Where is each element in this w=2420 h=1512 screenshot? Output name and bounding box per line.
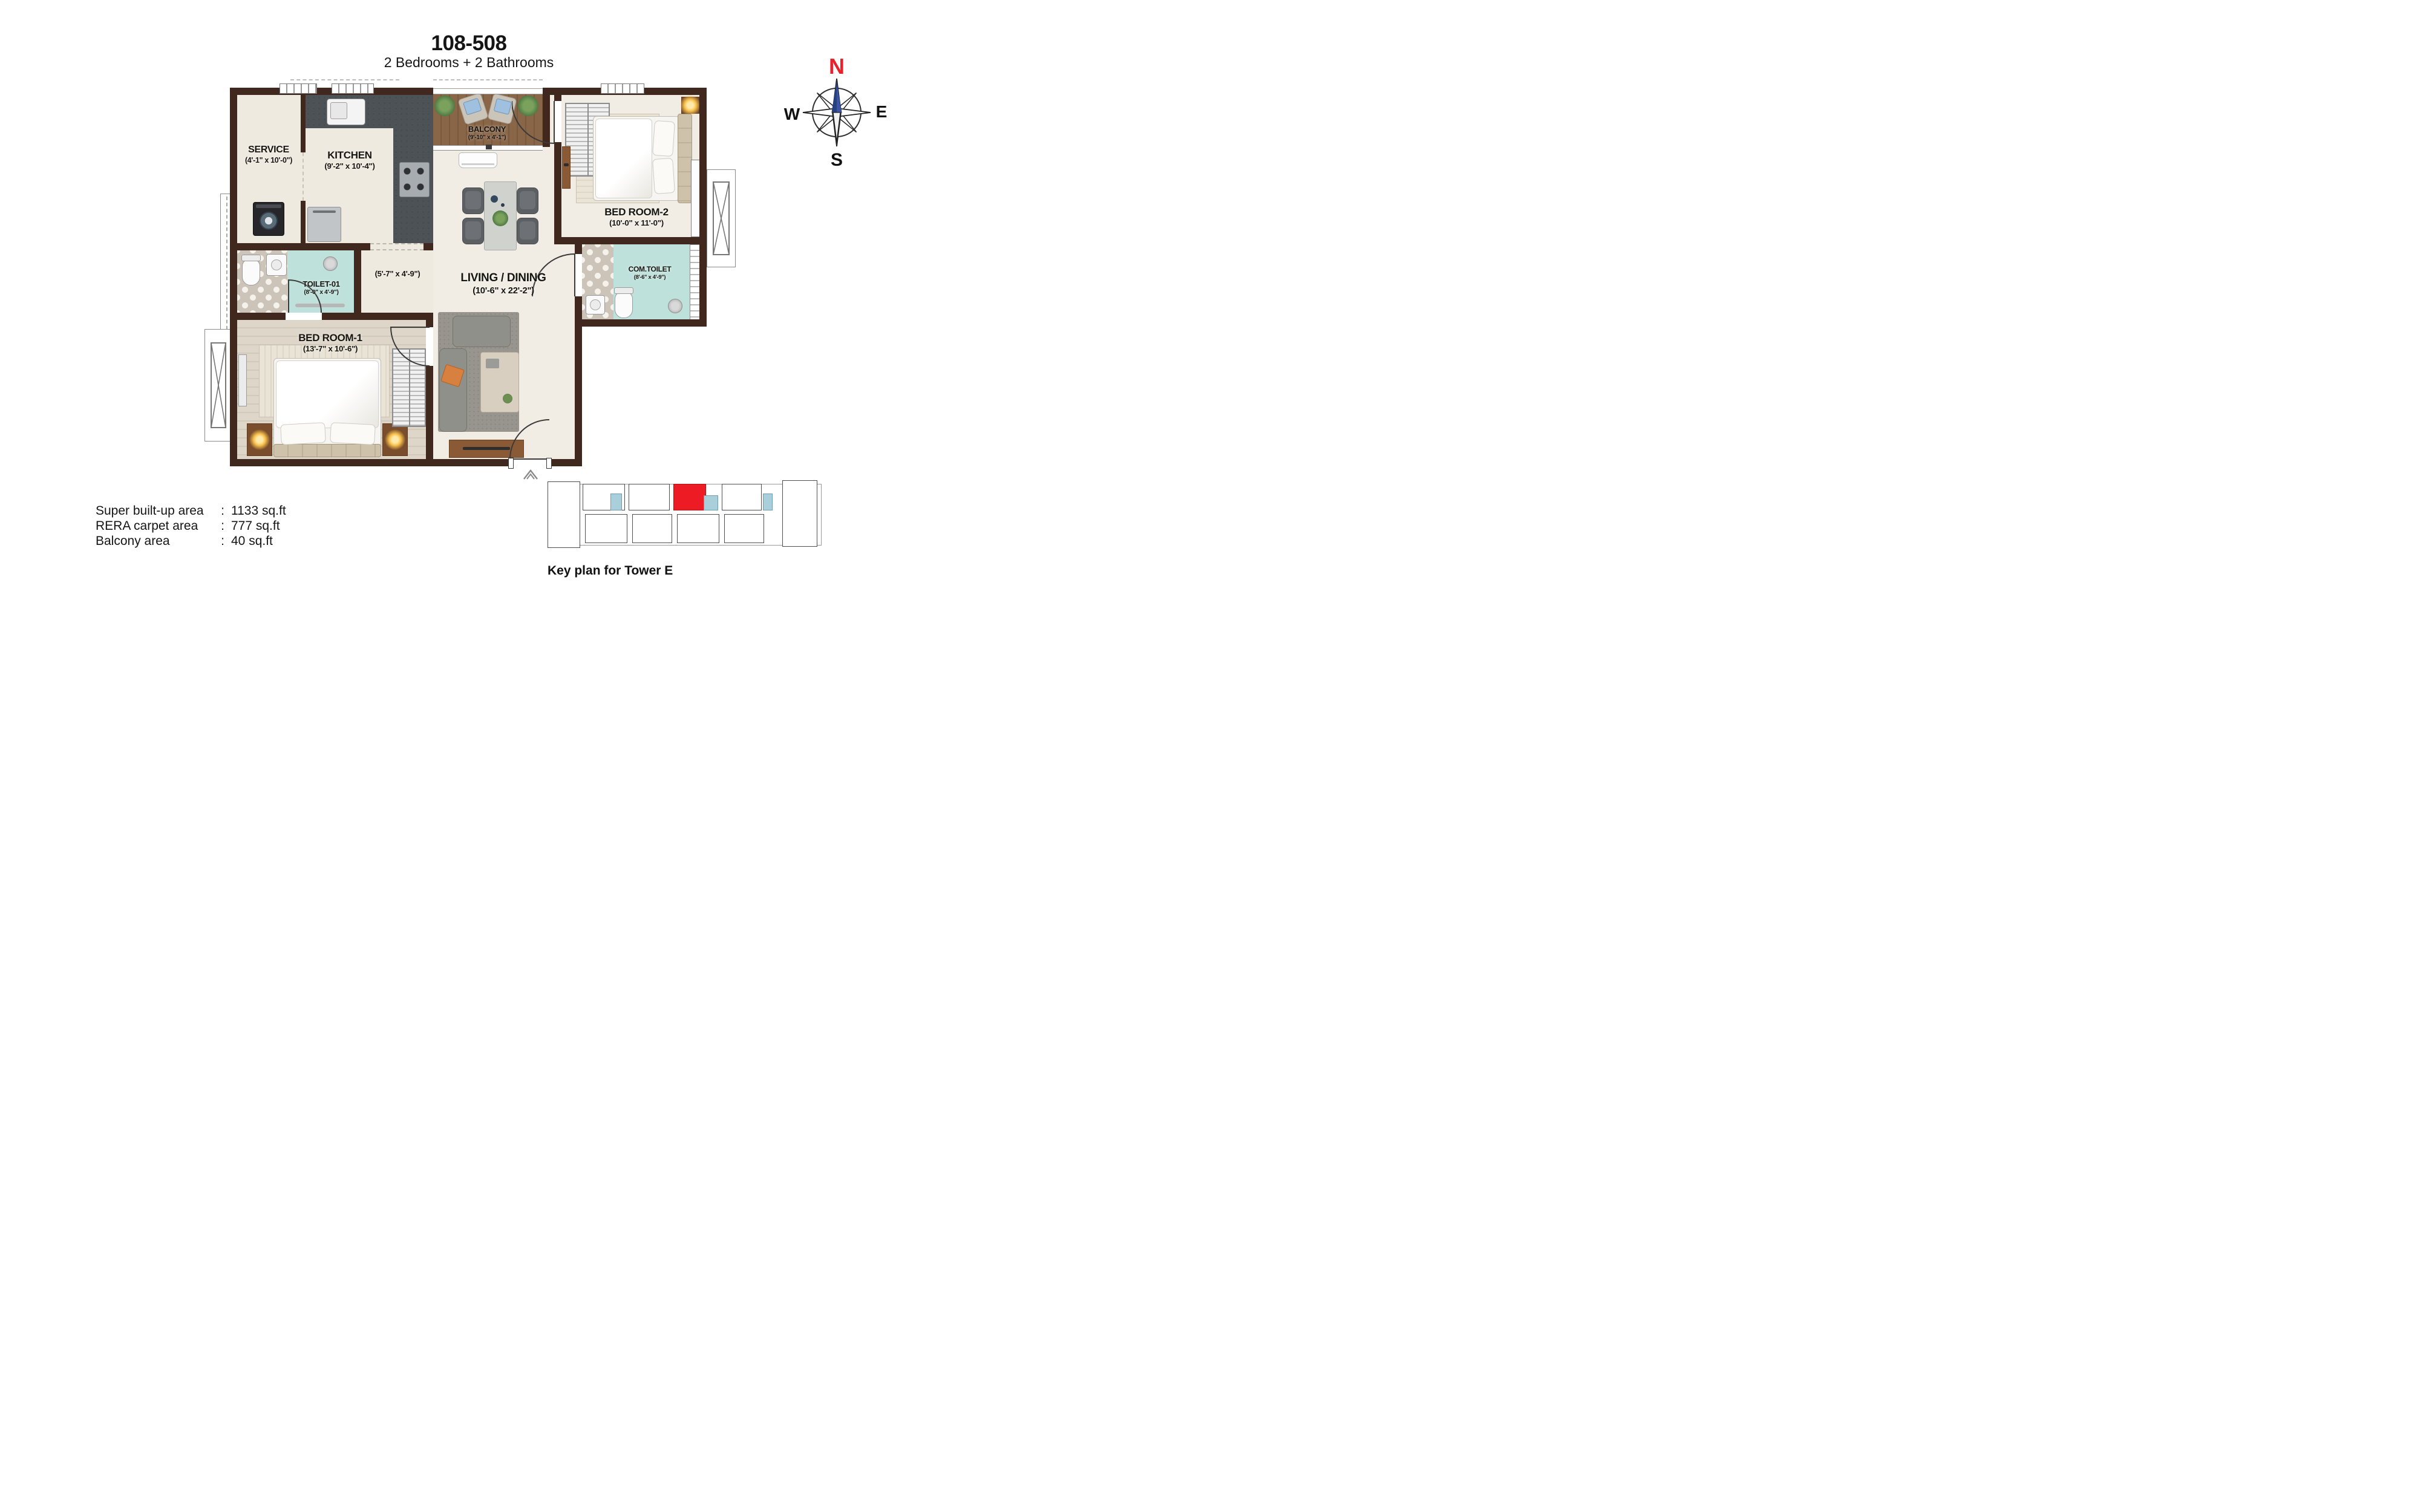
roof-overhang-dashed [433, 79, 543, 80]
area-value: 40 sq.ft [231, 533, 273, 549]
area-colon: : [214, 518, 231, 533]
page-title: 108-508 [287, 31, 650, 56]
window-top-bedroom2 [601, 83, 644, 94]
sofa-long [439, 348, 467, 432]
room-dims: (9'-2" x 10'-4") [324, 161, 374, 172]
comtoilet-basin [586, 295, 605, 314]
main-entrance-door [509, 419, 551, 461]
door-frame [546, 458, 552, 469]
wall-bedroom1-divider-a [426, 313, 433, 327]
bedroom1-headboard [273, 444, 381, 457]
roof-overhang-dashed [290, 79, 399, 80]
window-x-glass-icon [707, 170, 735, 267]
balcony-railing [433, 88, 543, 94]
keyplan-unit-highlighted [673, 484, 706, 510]
room-name: BED ROOM-1 [298, 331, 362, 344]
comtoilet-shower-head [668, 299, 682, 313]
wall-left [230, 88, 237, 466]
bedroom1-nightstand-left [247, 423, 272, 456]
opening-service-kitchen [302, 152, 305, 201]
window-bay-bedroom2 [707, 169, 736, 267]
keyplan-unit-bottom-4 [724, 514, 764, 543]
wall-toilet1-bottom-b [322, 313, 433, 320]
wall-service-kitchen-b [301, 201, 306, 243]
service-label: SERVICE (4'-1" x 10'-0") [245, 144, 292, 166]
bedroom2-door [512, 99, 557, 146]
keyplan-unit-end-left [548, 481, 580, 548]
area-value: 1133 sq.ft [231, 503, 286, 518]
room-name: BALCONY [468, 125, 506, 134]
room-dims: (13'-7" x 10'-6") [298, 344, 362, 354]
keyplan [548, 479, 827, 555]
keyplan-stair-core [763, 494, 773, 510]
room-name: COM.TOILET [629, 265, 672, 274]
balcony-label: BALCONY (9'-10" x 4'-1") [468, 125, 506, 142]
room-name: SERVICE [245, 144, 292, 156]
wall-toilet1-right [354, 250, 361, 313]
area-summary: Super built-up area : 1133 sq.ft RERA ca… [96, 503, 286, 549]
living-dining-label: LIVING / DINING (10'-6" x 22'-2") [460, 271, 546, 296]
wall-service-kitchen-a [301, 95, 306, 152]
lamp-glow-icon [385, 429, 405, 450]
washing-machine [253, 202, 284, 236]
wall-bedroom1-divider-b [426, 366, 433, 459]
dining-chair [517, 187, 538, 214]
room-dims: (8'-6" x 4'-9") [629, 274, 672, 281]
room-dims: (9'-10" x 4'-1") [468, 134, 506, 142]
keyplan-unit-top-2 [629, 484, 670, 510]
area-colon: : [214, 533, 231, 549]
keyplan-unit-bottom-1 [585, 514, 627, 543]
ac-unit [459, 152, 497, 168]
bedroom1-duvet [276, 360, 379, 428]
bedroom2-corner-lamp [681, 97, 699, 114]
toilet1-shower-head [323, 256, 338, 271]
room-dims: (8'-0" x 4'-9") [302, 289, 339, 297]
room-name: TOILET-01 [302, 279, 339, 289]
bedroom2-pillow-top [652, 120, 675, 157]
opening-kitchen-passage [370, 243, 423, 250]
passage-floor [361, 250, 433, 313]
area-label: RERA carpet area [96, 518, 214, 533]
room-name: LIVING / DINING [460, 271, 546, 285]
wall-right [699, 88, 707, 327]
area-row: RERA carpet area : 777 sq.ft [96, 518, 286, 533]
area-colon: : [214, 503, 231, 518]
area-row: Balcony area : 40 sq.ft [96, 533, 286, 549]
dining-chair [517, 218, 538, 244]
gas-hob [399, 162, 430, 197]
area-label: Super built-up area [96, 503, 214, 518]
toilet1-basin [266, 254, 287, 276]
compass-rose-icon: N S W E [782, 53, 891, 168]
bedroom2-duvet [595, 119, 652, 198]
bedroom2-headboard [678, 114, 692, 203]
window-x-glass-icon [205, 330, 233, 441]
bedroom1-label: BED ROOM-1 (13'-7" x 10'-6") [298, 331, 362, 354]
area-value: 777 sq.ft [231, 518, 280, 533]
toilet1-label: TOILET-01 (8'-0" x 4'-9") [302, 279, 339, 297]
area-row: Super built-up area : 1133 sq.ft [96, 503, 286, 518]
keyplan-unit-top-3 [722, 484, 762, 510]
entry-arrow-icon [523, 469, 538, 480]
wall-comtoilet-stub-bottom [575, 296, 582, 319]
wall-foyer-right [575, 319, 582, 466]
compass-south-label: S [831, 150, 843, 168]
bedroom1-nightstand-right [382, 423, 408, 456]
compass-east-label: E [876, 102, 888, 121]
wall-comtoilet-bottom [575, 319, 707, 327]
wall-bottom-b [549, 459, 582, 466]
bedroom1-door [390, 326, 432, 368]
window-top-kitchen-a [280, 83, 317, 94]
bedroom1-tv-panel [238, 354, 247, 406]
wall-bedroom2-bottom [554, 237, 707, 244]
bedroom2-label: BED ROOM-2 (10'-0" x 11'-0") [604, 206, 669, 229]
bedroom2-tv-panel [562, 146, 571, 189]
dining-chair [462, 218, 484, 244]
bedroom2-pillow-bottom [652, 158, 675, 194]
sofa-loveseat [453, 316, 511, 347]
floorplan-page: 108-508 2 Bedrooms + 2 Bathrooms N S W E [0, 0, 968, 605]
comtoilet-label: COM.TOILET (8'-6" x 4'-9") [629, 265, 672, 281]
keyplan-unit-end-right [782, 480, 817, 547]
keyplan-stair-core [610, 494, 622, 510]
keyplan-stair-core [704, 495, 718, 510]
lamp-glow-icon [249, 429, 270, 450]
keyplan-unit-bottom-3 [677, 514, 719, 543]
compass-north-label: N [829, 54, 845, 79]
bedroom1-pillow-left [280, 422, 326, 445]
balcony-plant-left [434, 96, 455, 116]
balcony-sliding-door [433, 145, 543, 151]
kitchen-cabinet [307, 207, 341, 242]
area-label: Balcony area [96, 533, 214, 549]
kitchen-label: KITCHEN (9'-2" x 10'-4") [324, 149, 374, 172]
kitchen-sink [327, 99, 365, 125]
keyplan-caption: Key plan for Tower E [548, 564, 673, 578]
comtoilet-wc [615, 292, 633, 318]
toilet1-wc [242, 259, 260, 285]
window-bay-bedroom1 [204, 329, 234, 442]
lamp-glow-icon [680, 95, 701, 116]
room-dims: (10'-0" x 11'-0") [604, 218, 669, 229]
compass-west-label: W [784, 105, 800, 123]
wall-bedroom2-left-b [554, 142, 561, 244]
wall-bottom-a [230, 459, 510, 466]
dining-plant [492, 210, 508, 226]
room-name: BED ROOM-2 [604, 206, 669, 218]
room-name: KITCHEN [324, 149, 374, 161]
passage-dims-label: (5'-7" x 4'-9") [375, 269, 420, 279]
window-top-kitchen-b [332, 83, 374, 94]
keyplan-unit-bottom-2 [632, 514, 672, 543]
coffee-table [480, 352, 519, 412]
door-frame [508, 458, 514, 469]
page-subtitle: 2 Bedrooms + 2 Bathrooms [287, 54, 650, 71]
bedroom1-pillow-right [330, 422, 376, 445]
dining-chair [462, 187, 484, 214]
room-dims: (5'-7" x 4'-9") [375, 269, 420, 279]
room-dims: (4'-1" x 10'-0") [245, 156, 292, 166]
wall-toilet1-bottom-a [237, 313, 286, 320]
room-dims: (10'-6" x 22'-2") [460, 285, 546, 297]
